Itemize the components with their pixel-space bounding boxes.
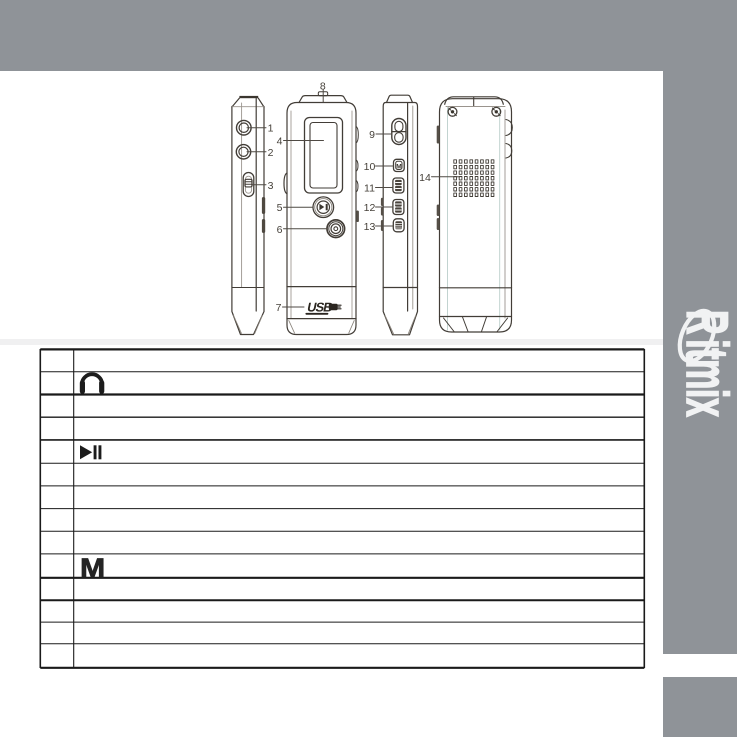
svg-text:5: 5 (277, 202, 283, 214)
svg-text:11: 11 (364, 183, 375, 195)
svg-text:8: 8 (320, 81, 326, 93)
svg-text:14: 14 (419, 172, 431, 184)
svg-text:12: 12 (364, 202, 376, 214)
svg-text:2: 2 (268, 147, 274, 159)
svg-text:M: M (80, 553, 105, 583)
svg-text:9: 9 (369, 129, 375, 141)
svg-text:7: 7 (276, 302, 282, 314)
svg-text:M: M (396, 164, 401, 171)
svg-text:10: 10 (364, 161, 376, 173)
svg-text:1: 1 (268, 123, 274, 135)
svg-text:3: 3 (268, 180, 274, 192)
svg-text:6: 6 (277, 224, 283, 236)
svg-text:13: 13 (364, 221, 376, 233)
svg-text:4: 4 (277, 136, 283, 148)
